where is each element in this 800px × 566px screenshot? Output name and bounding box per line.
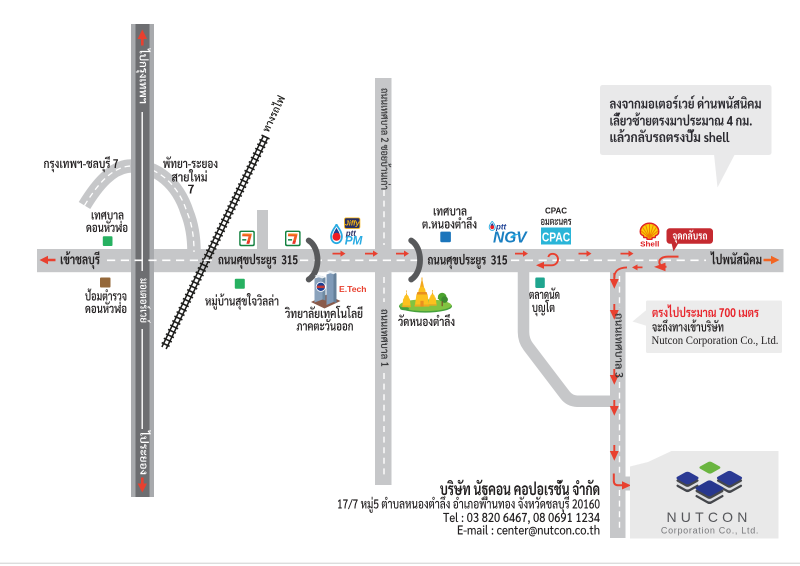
svg-text:E.Tech: E.Tech [339,284,367,294]
svg-text:CPAC: CPAC [542,232,570,245]
svg-text:CPAC: CPAC [545,207,567,216]
svg-text:PM: PM [345,234,364,248]
svg-text:Shell: Shell [640,240,659,248]
svg-text:NUTCON: NUTCON [666,509,751,525]
svg-text:NGV: NGV [493,230,528,247]
svg-text:Corporation Co., Ltd.: Corporation Co., Ltd. [661,526,759,536]
svg-text:Jiffy: Jiffy [345,219,361,228]
svg-text:Nutcon Corporation Co., Ltd.: Nutcon Corporation Co., Ltd. [652,335,779,347]
